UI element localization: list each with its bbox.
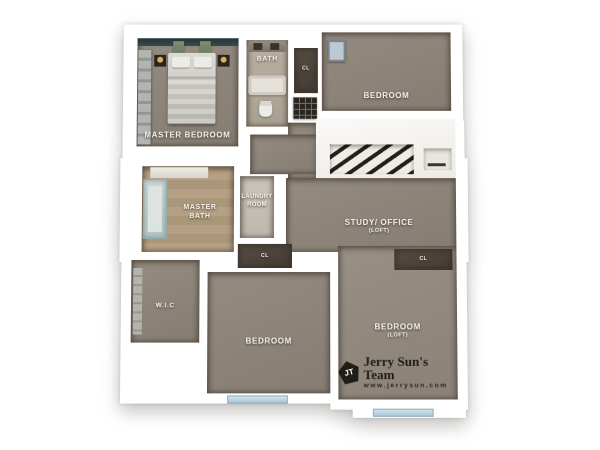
- room-label-bedroom-loft: BEDROOM (LOFT): [338, 322, 457, 339]
- badge-initials: JT: [343, 367, 354, 378]
- room-bedroom-bottom: BEDROOM: [207, 272, 330, 393]
- pillow: [172, 57, 190, 68]
- closet-label: CL: [238, 253, 292, 259]
- closet-label: CL: [294, 66, 318, 72]
- brand-website: www.jerrysun.com: [364, 383, 458, 390]
- study-office-subtext: (LOFT): [314, 228, 444, 235]
- vanity: [150, 167, 208, 178]
- window: [373, 409, 434, 417]
- room-label-master-bedroom: MASTER BEDROOM: [137, 131, 239, 141]
- window: [227, 395, 288, 403]
- room-master-bath: MASTER BATH: [142, 166, 235, 252]
- room-master-bedroom: MASTER BEDROOM: [137, 38, 239, 146]
- floor-plan-3d: MASTER BEDROOM BATH CL BEDROOM STUDY/: [0, 3, 600, 450]
- room-label-bath: BATH: [246, 56, 288, 65]
- floor-plan-canvas: MASTER BEDROOM BATH CL BEDROOM STUDY/: [0, 0, 600, 450]
- lamp-icon: [157, 57, 163, 63]
- room-label-study-office: STUDY/ OFFICE (LOFT): [314, 218, 444, 235]
- lamp-icon: [221, 57, 227, 63]
- room-bedroom-top: BEDROOM: [322, 32, 451, 110]
- toilet: [259, 101, 272, 117]
- bedroom-loft-subtext: (LOFT): [338, 332, 457, 339]
- sink-icon: [270, 43, 279, 50]
- closet-top: CL: [294, 48, 318, 93]
- building-shadow-wrapper: MASTER BEDROOM BATH CL BEDROOM STUDY/: [0, 3, 600, 450]
- sink-counter: [248, 41, 286, 52]
- nightstand: [218, 55, 230, 67]
- closet-bedroom-loft: CL: [394, 249, 452, 270]
- room-laundry: LAUNDRY ROOM: [240, 176, 274, 238]
- hallway: [250, 135, 318, 175]
- room-wic: W.I.C: [131, 260, 200, 343]
- sink-icon: [253, 43, 262, 50]
- room-label-master-bath: MASTER BATH: [172, 204, 228, 221]
- closet-label: CL: [394, 256, 452, 262]
- room-study-office: STUDY/ OFFICE (LOFT): [286, 178, 456, 252]
- room-label-laundry: LAUNDRY ROOM: [240, 194, 274, 209]
- nightstand: [154, 55, 166, 67]
- room-bedroom-loft: CL BEDROOM (LOFT) JT Jerry Sun's Team ww…: [338, 246, 458, 400]
- bed: [168, 53, 216, 124]
- shower: [143, 179, 168, 239]
- bedroom-loft-text: BEDROOM: [375, 322, 421, 331]
- window-picture: [328, 40, 346, 62]
- stairwell-half-wall: [316, 119, 456, 178]
- study-office-text: STUDY/ OFFICE: [345, 218, 414, 227]
- room-label-bedroom-top: BEDROOM: [322, 91, 451, 101]
- closet-hall: CL: [238, 244, 292, 268]
- stairwell-landing: [424, 148, 452, 170]
- room-bath: BATH: [246, 40, 288, 126]
- railing: [428, 163, 446, 166]
- pillow: [194, 57, 212, 68]
- toilet-tank: [260, 101, 271, 106]
- room-label-wic: W.I.C: [131, 302, 199, 310]
- shower-tray: [148, 186, 162, 232]
- brand-logo: JT Jerry Sun's Team www.jerrysun.com: [338, 355, 457, 390]
- stairs-opening: [330, 144, 414, 174]
- brand-text: Jerry Sun's Team www.jerrysun.com: [364, 355, 458, 390]
- bathtub: [248, 75, 286, 95]
- stair-grid: [293, 97, 317, 119]
- jerry-sun-team-badge-icon: JT: [336, 359, 362, 386]
- quilt: [168, 79, 216, 123]
- room-label-bedroom-bottom: BEDROOM: [207, 337, 330, 347]
- brand-team-name: Jerry Sun's Team: [364, 355, 458, 381]
- accent-wall: [137, 38, 238, 46]
